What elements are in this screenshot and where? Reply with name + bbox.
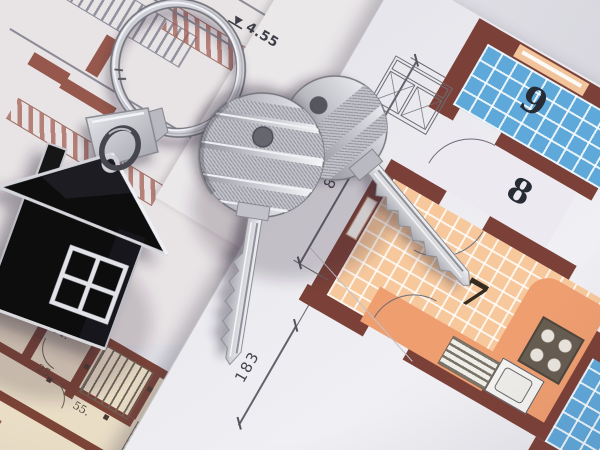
keychain-group [0,0,600,450]
photo-scene: 4.55 54. 25 55. [0,0,600,450]
